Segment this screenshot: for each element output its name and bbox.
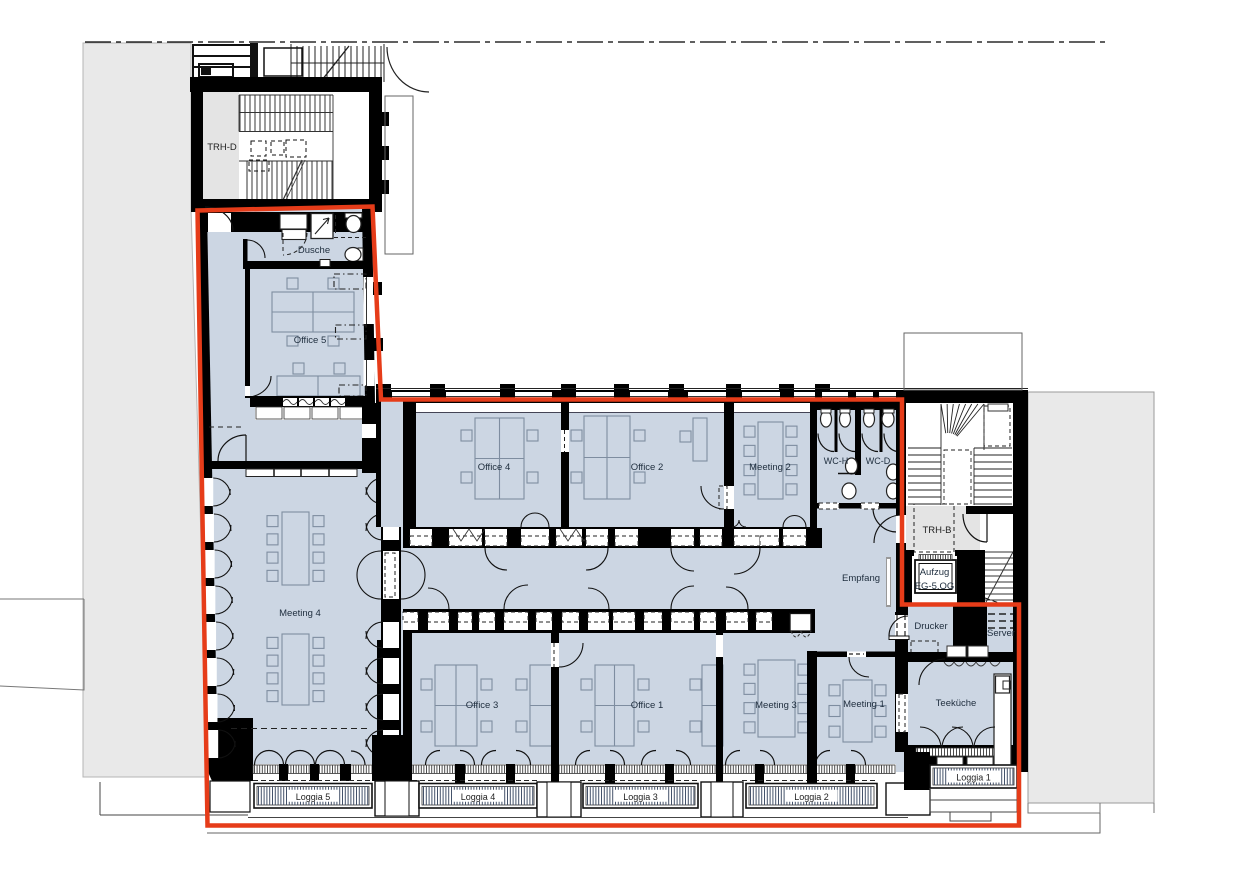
svg-text:Drucker: Drucker xyxy=(914,621,947,632)
svg-text:Server: Server xyxy=(987,628,1015,639)
svg-text:Empfang: Empfang xyxy=(842,573,880,584)
svg-text:Aufzug: Aufzug xyxy=(920,567,950,578)
svg-text:Dusche: Dusche xyxy=(298,245,330,256)
svg-text:Meeting 3: Meeting 3 xyxy=(755,700,797,711)
svg-text:Loggia 3: Loggia 3 xyxy=(623,792,658,802)
svg-text:Meeting 2: Meeting 2 xyxy=(749,462,791,473)
svg-text:EG-5.OG: EG-5.OG xyxy=(915,581,955,592)
svg-text:WC-D: WC-D xyxy=(866,456,891,466)
svg-text:Loggia 4: Loggia 4 xyxy=(461,792,496,802)
svg-text:Office 2: Office 2 xyxy=(631,462,664,473)
svg-text:Office 5: Office 5 xyxy=(294,335,327,346)
svg-text:TRH-D: TRH-D xyxy=(207,142,237,153)
svg-text:Loggia 2: Loggia 2 xyxy=(794,792,829,802)
svg-text:WC-H: WC-H xyxy=(824,456,849,466)
svg-text:Teeküche: Teeküche xyxy=(936,698,977,709)
svg-text:Office 3: Office 3 xyxy=(466,700,499,711)
svg-text:Office 1: Office 1 xyxy=(631,700,664,711)
svg-text:TRH-B: TRH-B xyxy=(922,525,951,536)
svg-text:Meeting 1: Meeting 1 xyxy=(843,699,885,710)
svg-text:Loggia 5: Loggia 5 xyxy=(296,792,331,802)
svg-text:Office 4: Office 4 xyxy=(478,462,511,473)
svg-text:Loggia 1: Loggia 1 xyxy=(956,773,991,783)
svg-text:Meeting 4: Meeting 4 xyxy=(279,608,321,619)
